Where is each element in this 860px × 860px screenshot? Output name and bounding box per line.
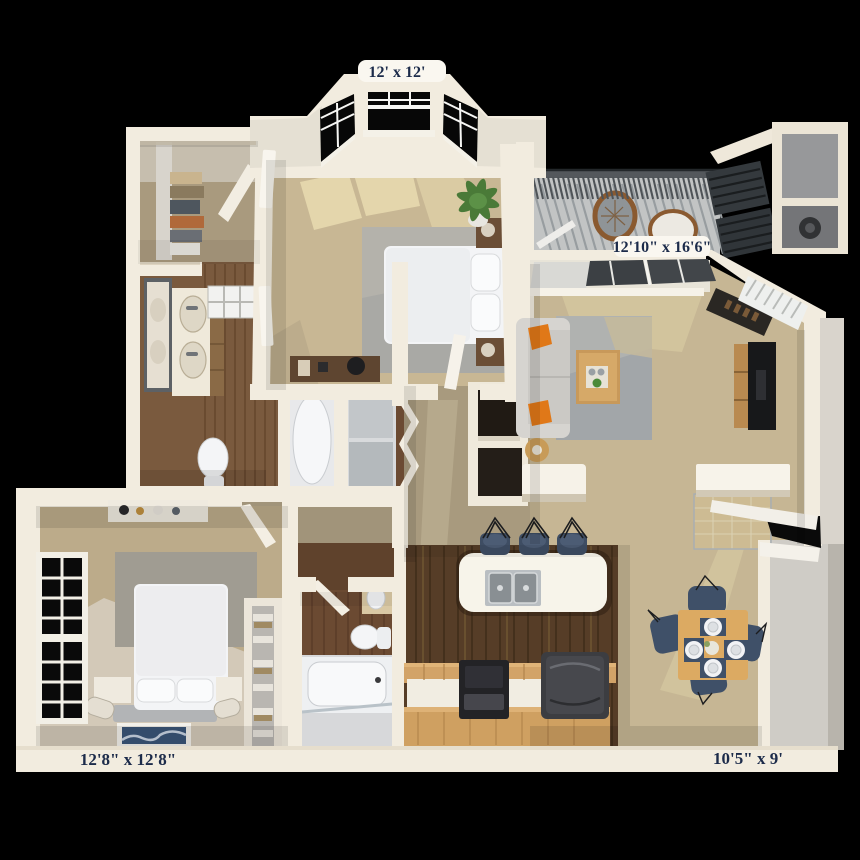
svg-text:12' x 12': 12' x 12' bbox=[369, 64, 426, 81]
svg-text:12'10" x 16'6": 12'10" x 16'6" bbox=[613, 239, 712, 256]
svg-text:10'5" x 9': 10'5" x 9' bbox=[713, 749, 783, 768]
svg-text:12'8" x 12'8": 12'8" x 12'8" bbox=[80, 750, 176, 769]
